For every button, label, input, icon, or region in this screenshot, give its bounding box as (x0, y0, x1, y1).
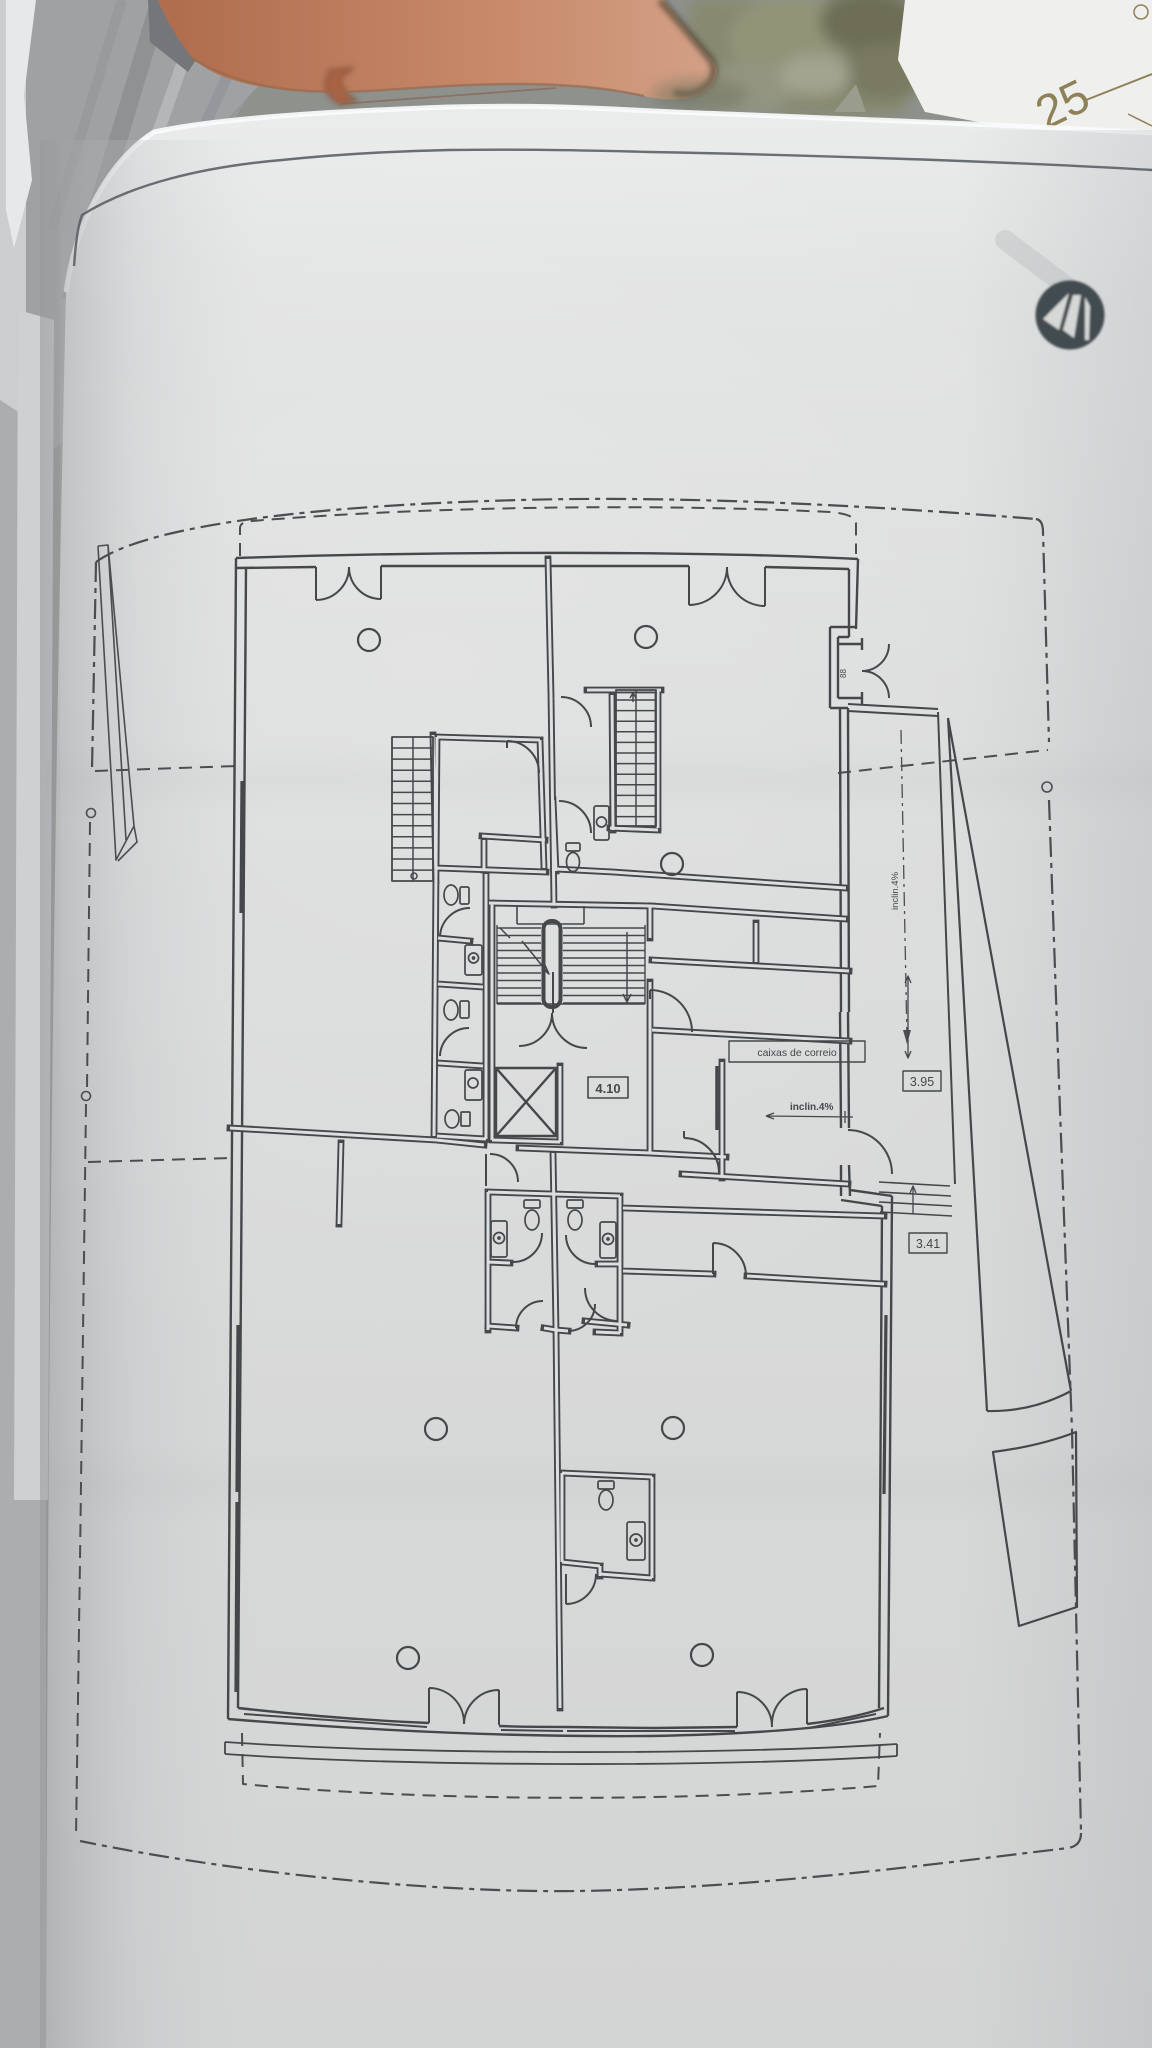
svg-text:4.10: 4.10 (595, 1081, 620, 1096)
svg-text:inclin.4%: inclin.4% (890, 871, 901, 910)
svg-text:88: 88 (839, 669, 848, 678)
svg-text:inclin.4%: inclin.4% (790, 1102, 833, 1113)
svg-text:caixas de correio: caixas de correio (757, 1047, 837, 1059)
svg-text:3.95: 3.95 (910, 1075, 934, 1089)
svg-text:3.41: 3.41 (916, 1237, 940, 1251)
